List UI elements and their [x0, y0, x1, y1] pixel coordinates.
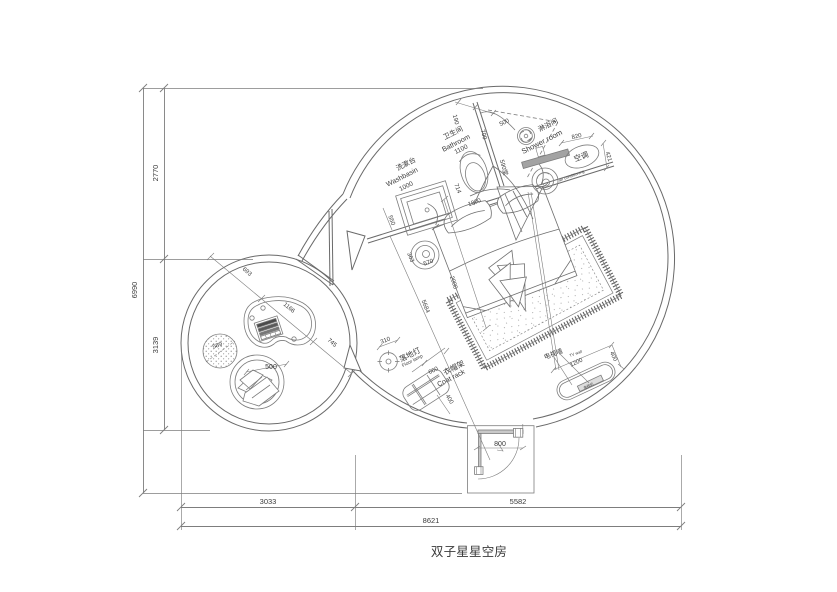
svg-text:820: 820 — [571, 133, 583, 141]
svg-text:空调: 空调 — [572, 149, 590, 164]
svg-text:air conditioning: air conditioning — [558, 169, 585, 183]
svg-text:745: 745 — [326, 338, 338, 349]
svg-text:400: 400 — [608, 351, 618, 363]
svg-text:TV wall: TV wall — [569, 349, 583, 358]
svg-text:1200: 1200 — [569, 357, 584, 368]
svg-text:660: 660 — [428, 366, 440, 376]
svg-text:693: 693 — [241, 267, 253, 278]
svg-text:8621: 8621 — [423, 516, 440, 525]
svg-text:500: 500 — [265, 364, 277, 371]
svg-text:3033: 3033 — [260, 497, 277, 506]
svg-text:700: 700 — [479, 129, 488, 141]
svg-text:6990: 6990 — [130, 282, 139, 299]
svg-text:550: 550 — [386, 215, 395, 227]
svg-text:500: 500 — [499, 118, 511, 128]
svg-text:5684: 5684 — [420, 299, 431, 314]
svg-text:714: 714 — [452, 183, 461, 195]
svg-text:800: 800 — [494, 441, 506, 448]
svg-text:421: 421 — [604, 151, 613, 163]
svg-text:3139: 3139 — [151, 337, 160, 354]
svg-text:1166: 1166 — [282, 302, 296, 315]
svg-text:190: 190 — [451, 114, 460, 126]
svg-text:2770: 2770 — [151, 165, 160, 182]
svg-text:双子星星空房: 双子星星空房 — [431, 544, 507, 559]
svg-text:电视墙: 电视墙 — [542, 346, 564, 361]
svg-text:400: 400 — [444, 394, 455, 406]
svg-text:5582: 5582 — [510, 497, 527, 506]
